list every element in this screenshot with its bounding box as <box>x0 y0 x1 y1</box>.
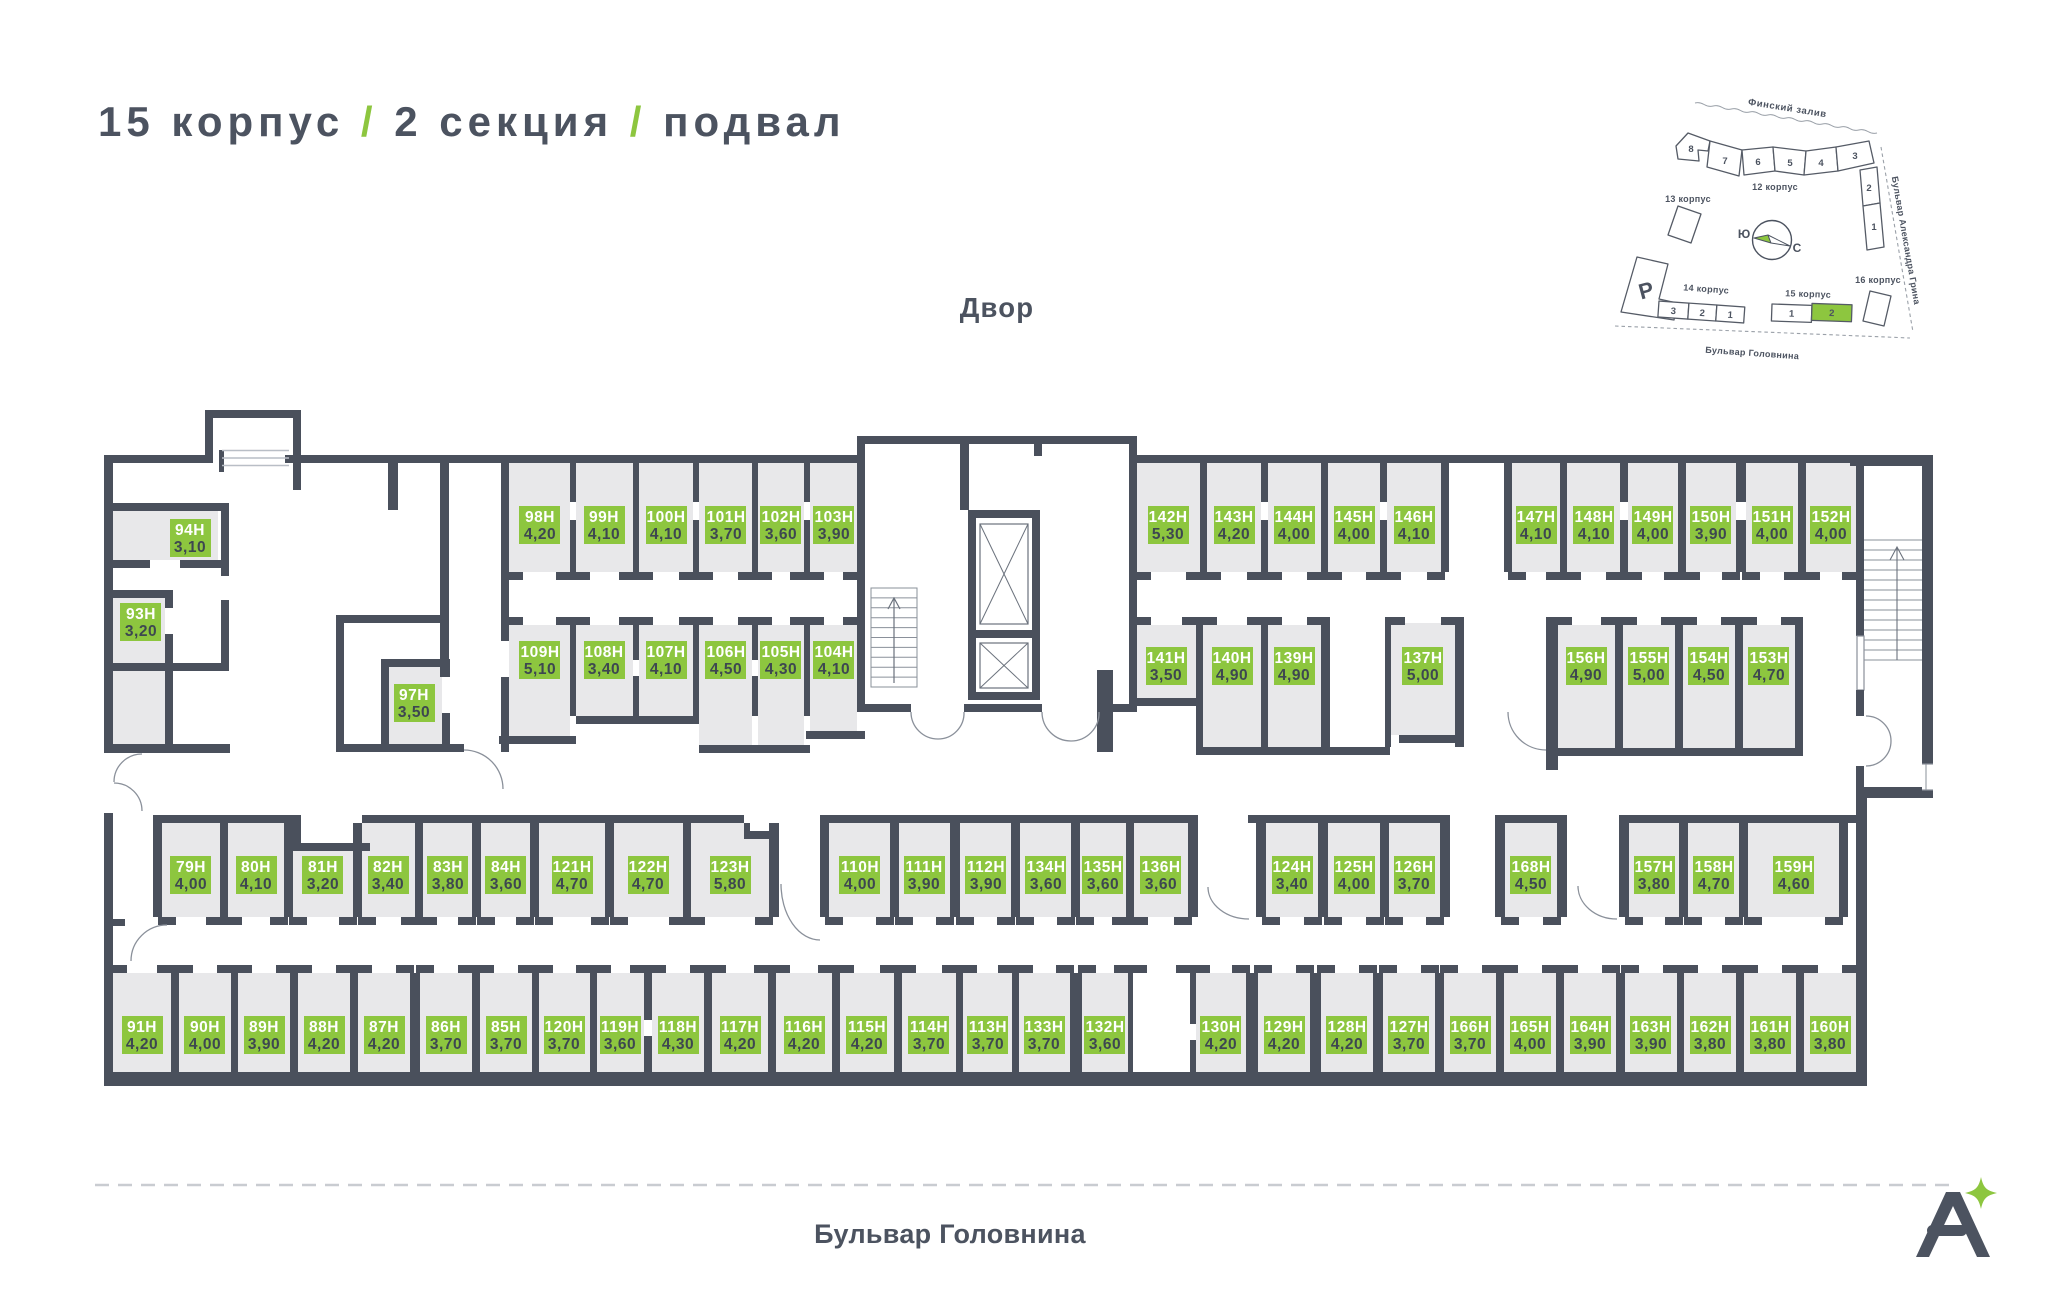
svg-text:3,70: 3,70 <box>972 1036 1004 1053</box>
svg-text:127Н: 127Н <box>1389 1019 1428 1036</box>
svg-text:4,10: 4,10 <box>1398 526 1430 543</box>
svg-text:4,10: 4,10 <box>588 526 620 543</box>
svg-text:112Н: 112Н <box>967 859 1005 876</box>
svg-text:159Н: 159Н <box>1774 859 1813 876</box>
svg-text:3,40: 3,40 <box>372 876 404 893</box>
svg-text:82Н: 82Н <box>373 859 403 876</box>
svg-text:4,00: 4,00 <box>1338 876 1370 893</box>
svg-text:4,20: 4,20 <box>788 1036 820 1053</box>
svg-text:114Н: 114Н <box>910 1019 948 1036</box>
svg-text:4,30: 4,30 <box>765 661 797 678</box>
svg-text:126Н: 126Н <box>1394 859 1433 876</box>
svg-text:4,20: 4,20 <box>126 1036 158 1053</box>
svg-text:136Н: 136Н <box>1141 859 1180 876</box>
svg-text:105Н: 105Н <box>761 644 800 661</box>
svg-text:3,60: 3,60 <box>1087 876 1119 893</box>
svg-text:90Н: 90Н <box>190 1019 220 1036</box>
svg-text:145Н: 145Н <box>1334 509 1373 526</box>
svg-text:149Н: 149Н <box>1633 509 1672 526</box>
svg-text:128Н: 128Н <box>1327 1019 1366 1036</box>
svg-text:3,60: 3,60 <box>1030 876 1062 893</box>
svg-text:3: 3 <box>1852 151 1857 162</box>
svg-text:3,60: 3,60 <box>1089 1036 1121 1053</box>
svg-text:140Н: 140Н <box>1212 650 1251 667</box>
svg-text:3,70: 3,70 <box>430 1036 462 1053</box>
svg-text:153Н: 153Н <box>1749 650 1788 667</box>
svg-text:3,90: 3,90 <box>1574 1036 1606 1053</box>
svg-text:4,20: 4,20 <box>1268 1036 1300 1053</box>
svg-text:111Н: 111Н <box>905 859 942 876</box>
svg-text:4,70: 4,70 <box>632 876 664 893</box>
svg-text:4,00: 4,00 <box>1514 1036 1546 1053</box>
svg-text:3,70: 3,70 <box>548 1036 580 1053</box>
svg-text:165Н: 165Н <box>1510 1019 1549 1036</box>
svg-text:3,60: 3,60 <box>765 526 797 543</box>
svg-text:4,10: 4,10 <box>818 661 850 678</box>
svg-text:85Н: 85Н <box>491 1019 521 1036</box>
svg-text:4,90: 4,90 <box>1216 667 1248 684</box>
svg-text:147Н: 147Н <box>1516 509 1555 526</box>
svg-text:3,90: 3,90 <box>908 876 940 893</box>
svg-text:80Н: 80Н <box>241 859 271 876</box>
svg-text:4,00: 4,00 <box>1815 526 1847 543</box>
svg-text:15 корпус / 2 секция / подвал: 15 корпус / 2 секция / подвал <box>98 98 846 145</box>
svg-text:5,00: 5,00 <box>1633 667 1665 684</box>
svg-text:4,90: 4,90 <box>1278 667 1310 684</box>
svg-text:3,80: 3,80 <box>1754 1036 1786 1053</box>
svg-text:4,60: 4,60 <box>1778 876 1810 893</box>
svg-text:3,60: 3,60 <box>490 876 522 893</box>
svg-text:4,00: 4,00 <box>1278 526 1310 543</box>
svg-text:5,30: 5,30 <box>1152 526 1184 543</box>
svg-text:4,20: 4,20 <box>851 1036 883 1053</box>
svg-text:3,70: 3,70 <box>1028 1036 1060 1053</box>
svg-text:4,00: 4,00 <box>189 1036 221 1053</box>
svg-text:5: 5 <box>1787 158 1793 169</box>
svg-text:7: 7 <box>1722 156 1727 167</box>
svg-text:150Н: 150Н <box>1691 509 1730 526</box>
svg-text:99Н: 99Н <box>589 509 619 526</box>
svg-text:152Н: 152Н <box>1811 509 1850 526</box>
svg-text:4,00: 4,00 <box>175 876 207 893</box>
svg-text:3,90: 3,90 <box>818 526 850 543</box>
svg-text:4: 4 <box>1818 158 1824 169</box>
svg-text:158Н: 158Н <box>1694 859 1733 876</box>
svg-text:4,20: 4,20 <box>724 1036 756 1053</box>
svg-text:143Н: 143Н <box>1214 509 1253 526</box>
svg-text:108Н: 108Н <box>584 644 623 661</box>
svg-text:161Н: 161Н <box>1750 1019 1789 1036</box>
svg-text:4,20: 4,20 <box>368 1036 400 1053</box>
svg-text:4,00: 4,00 <box>1338 526 1370 543</box>
svg-text:113Н: 113Н <box>969 1019 1007 1036</box>
svg-text:2: 2 <box>1866 183 1871 194</box>
svg-text:8: 8 <box>1688 144 1693 155</box>
svg-text:4,10: 4,10 <box>650 661 682 678</box>
svg-text:130Н: 130Н <box>1201 1019 1240 1036</box>
svg-text:141Н: 141Н <box>1146 650 1185 667</box>
svg-text:119Н: 119Н <box>601 1019 639 1036</box>
svg-text:3,40: 3,40 <box>588 661 620 678</box>
svg-text:3,10: 3,10 <box>174 539 206 556</box>
svg-text:4,20: 4,20 <box>1218 526 1250 543</box>
svg-text:157Н: 157Н <box>1634 859 1673 876</box>
svg-text:3,60: 3,60 <box>1145 876 1177 893</box>
svg-text:4,10: 4,10 <box>1578 526 1610 543</box>
svg-text:3,90: 3,90 <box>248 1036 280 1053</box>
svg-text:121Н: 121Н <box>552 859 591 876</box>
svg-text:109Н: 109Н <box>520 644 559 661</box>
svg-text:116Н: 116Н <box>785 1019 823 1036</box>
svg-text:104Н: 104Н <box>814 644 853 661</box>
svg-text:2: 2 <box>1829 308 1835 319</box>
svg-text:123Н: 123Н <box>710 859 749 876</box>
svg-text:122Н: 122Н <box>628 859 667 876</box>
svg-text:160Н: 160Н <box>1810 1019 1849 1036</box>
svg-text:15 корпус: 15 корпус <box>1785 288 1831 300</box>
svg-text:120Н: 120Н <box>544 1019 583 1036</box>
svg-text:101Н: 101Н <box>706 509 745 526</box>
svg-text:162Н: 162Н <box>1690 1019 1729 1036</box>
svg-text:117Н: 117Н <box>721 1019 759 1036</box>
svg-text:148Н: 148Н <box>1574 509 1613 526</box>
svg-text:115Н: 115Н <box>848 1019 886 1036</box>
svg-text:86Н: 86Н <box>431 1019 461 1036</box>
svg-text:3,40: 3,40 <box>1276 876 1308 893</box>
svg-text:4,00: 4,00 <box>844 876 876 893</box>
svg-text:135Н: 135Н <box>1083 859 1122 876</box>
svg-text:4,20: 4,20 <box>524 526 556 543</box>
svg-text:83Н: 83Н <box>433 859 463 876</box>
svg-text:3,20: 3,20 <box>125 623 157 640</box>
svg-text:4,20: 4,20 <box>308 1036 340 1053</box>
svg-text:151Н: 151Н <box>1752 509 1791 526</box>
svg-text:156Н: 156Н <box>1566 650 1605 667</box>
svg-text:154Н: 154Н <box>1689 650 1728 667</box>
svg-text:1: 1 <box>1871 222 1877 233</box>
svg-text:129Н: 129Н <box>1264 1019 1303 1036</box>
svg-text:4,00: 4,00 <box>1637 526 1669 543</box>
svg-text:Ю: Ю <box>1738 227 1750 241</box>
svg-text:4,50: 4,50 <box>1693 667 1725 684</box>
svg-text:С: С <box>1793 241 1802 255</box>
svg-text:144Н: 144Н <box>1274 509 1313 526</box>
svg-text:132Н: 132Н <box>1085 1019 1124 1036</box>
svg-text:103Н: 103Н <box>814 509 853 526</box>
svg-text:118Н: 118Н <box>659 1019 697 1036</box>
svg-text:110Н: 110Н <box>841 859 879 876</box>
svg-text:3,90: 3,90 <box>970 876 1002 893</box>
svg-text:3,70: 3,70 <box>1454 1036 1486 1053</box>
svg-text:94Н: 94Н <box>175 522 205 539</box>
svg-text:12 корпус: 12 корпус <box>1752 182 1798 192</box>
svg-text:79Н: 79Н <box>176 859 206 876</box>
svg-text:3,90: 3,90 <box>1695 526 1727 543</box>
svg-text:4,10: 4,10 <box>650 526 682 543</box>
svg-text:84Н: 84Н <box>491 859 521 876</box>
svg-text:102Н: 102Н <box>761 509 800 526</box>
svg-text:13 корпус: 13 корпус <box>1665 194 1711 204</box>
svg-text:98Н: 98Н <box>525 509 555 526</box>
svg-text:106Н: 106Н <box>706 644 745 661</box>
svg-text:107Н: 107Н <box>646 644 685 661</box>
svg-text:4,10: 4,10 <box>1520 526 1552 543</box>
svg-text:4,00: 4,00 <box>1756 526 1788 543</box>
svg-text:137Н: 137Н <box>1403 650 1442 667</box>
svg-text:3,80: 3,80 <box>1814 1036 1846 1053</box>
svg-text:4,30: 4,30 <box>662 1036 694 1053</box>
svg-text:4,50: 4,50 <box>710 661 742 678</box>
svg-text:4,70: 4,70 <box>556 876 588 893</box>
svg-text:97Н: 97Н <box>399 687 429 704</box>
svg-text:Бульвар Головнина: Бульвар Головнина <box>814 1219 1086 1249</box>
svg-text:4,10: 4,10 <box>240 876 272 893</box>
svg-text:3,70: 3,70 <box>1398 876 1430 893</box>
svg-text:4,70: 4,70 <box>1698 876 1730 893</box>
svg-text:133Н: 133Н <box>1024 1019 1063 1036</box>
svg-text:146Н: 146Н <box>1394 509 1433 526</box>
svg-text:3,50: 3,50 <box>1150 667 1182 684</box>
svg-text:93Н: 93Н <box>126 606 156 623</box>
svg-text:134Н: 134Н <box>1026 859 1065 876</box>
svg-text:6: 6 <box>1755 157 1760 168</box>
svg-text:2: 2 <box>1699 308 1705 319</box>
svg-text:139Н: 139Н <box>1274 650 1313 667</box>
svg-text:3,70: 3,70 <box>1393 1036 1425 1053</box>
svg-text:3,70: 3,70 <box>490 1036 522 1053</box>
svg-text:100Н: 100Н <box>646 509 685 526</box>
svg-text:3,80: 3,80 <box>1694 1036 1726 1053</box>
svg-text:4,90: 4,90 <box>1570 667 1602 684</box>
svg-text:163Н: 163Н <box>1631 1019 1670 1036</box>
svg-text:142Н: 142Н <box>1148 509 1187 526</box>
svg-text:Двор: Двор <box>960 292 1035 323</box>
svg-text:5,00: 5,00 <box>1407 667 1439 684</box>
svg-text:3,70: 3,70 <box>913 1036 945 1053</box>
svg-text:125Н: 125Н <box>1334 859 1373 876</box>
svg-text:87Н: 87Н <box>369 1019 399 1036</box>
svg-text:4,50: 4,50 <box>1515 876 1547 893</box>
svg-text:16 корпус: 16 корпус <box>1855 275 1901 285</box>
svg-text:89Н: 89Н <box>249 1019 279 1036</box>
svg-text:3,80: 3,80 <box>432 876 464 893</box>
svg-text:124Н: 124Н <box>1272 859 1311 876</box>
svg-text:4,20: 4,20 <box>1331 1036 1363 1053</box>
svg-text:3,90: 3,90 <box>1635 1036 1667 1053</box>
svg-text:164Н: 164Н <box>1570 1019 1609 1036</box>
svg-text:3,70: 3,70 <box>710 526 742 543</box>
svg-text:166Н: 166Н <box>1450 1019 1489 1036</box>
svg-text:4,70: 4,70 <box>1753 667 1785 684</box>
svg-text:168Н: 168Н <box>1511 859 1550 876</box>
svg-text:5,10: 5,10 <box>524 661 556 678</box>
svg-text:88Н: 88Н <box>309 1019 339 1036</box>
svg-text:4,20: 4,20 <box>1205 1036 1237 1053</box>
svg-text:3,20: 3,20 <box>307 876 339 893</box>
svg-text:3,80: 3,80 <box>1638 876 1670 893</box>
svg-text:3,60: 3,60 <box>604 1036 636 1053</box>
svg-text:155Н: 155Н <box>1629 650 1668 667</box>
svg-text:5,80: 5,80 <box>714 876 746 893</box>
svg-text:81Н: 81Н <box>308 859 338 876</box>
svg-text:3: 3 <box>1670 306 1676 317</box>
svg-text:91Н: 91Н <box>127 1019 157 1036</box>
svg-text:3,50: 3,50 <box>398 704 430 721</box>
